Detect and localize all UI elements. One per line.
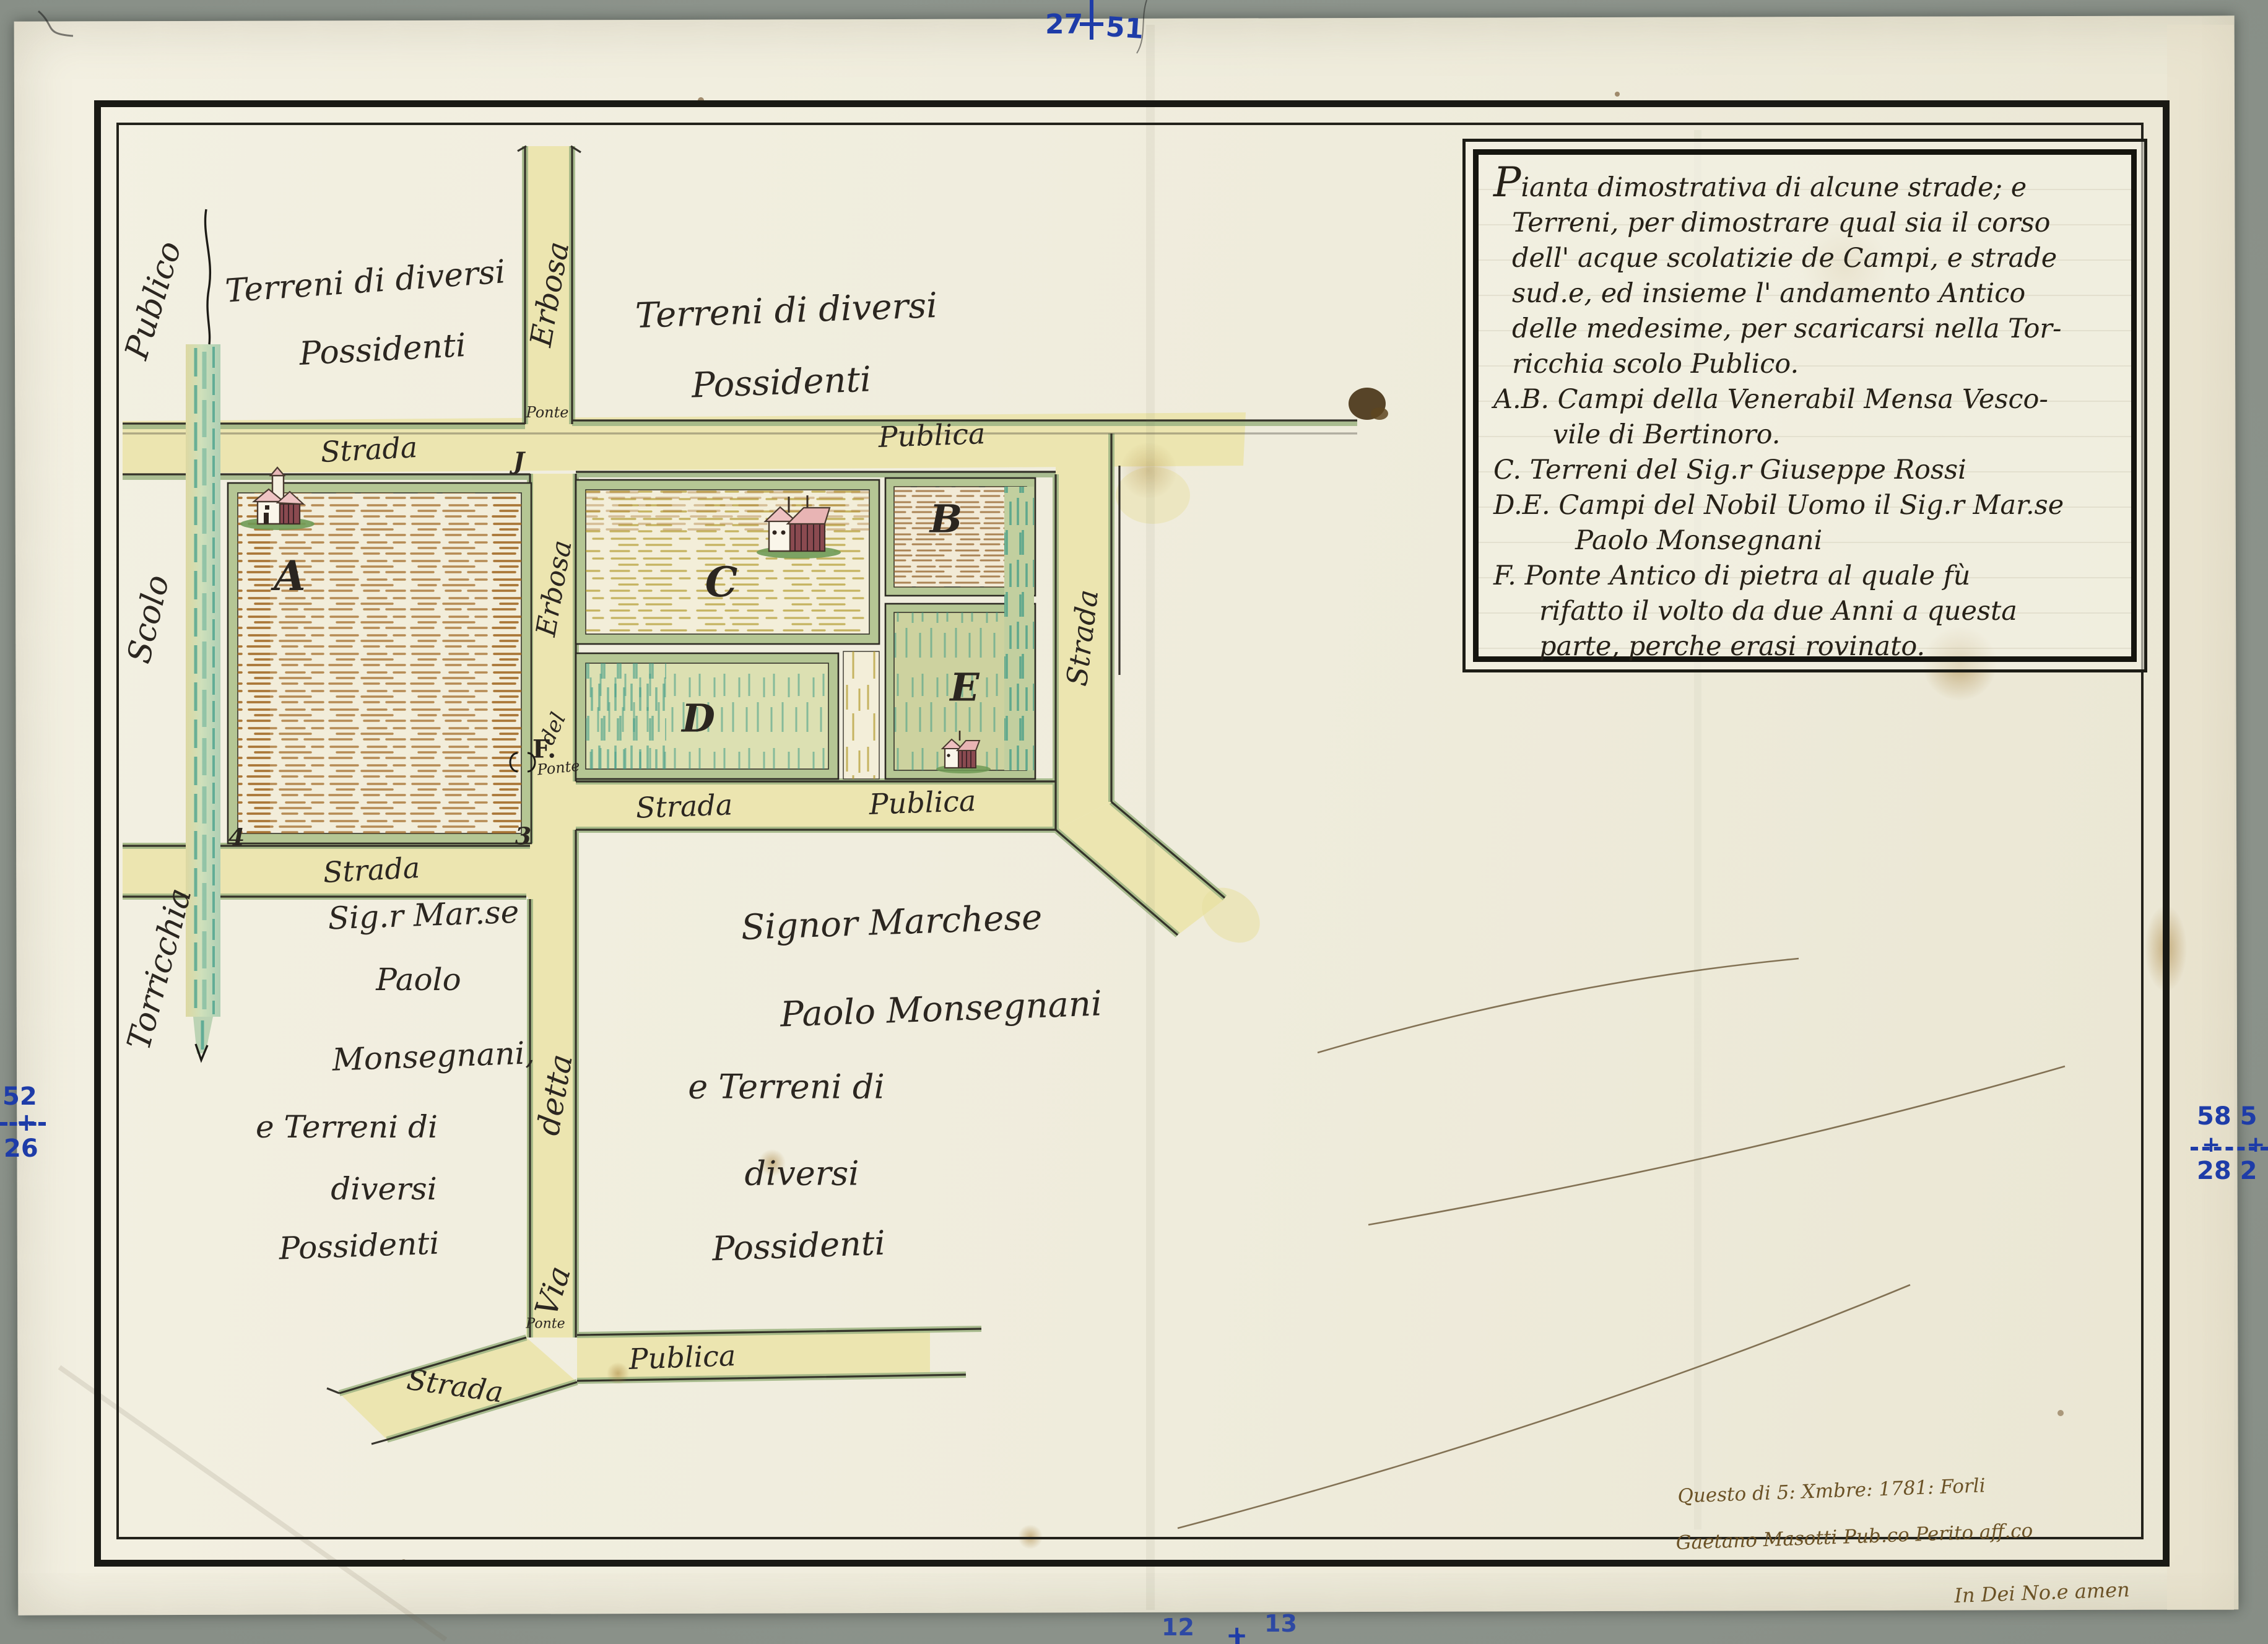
label-publica-top: Publica bbox=[878, 417, 986, 454]
reg-mark-right-crosses: ++ bbox=[2202, 1132, 2268, 1157]
paper-edge-tint bbox=[2167, 25, 2234, 1610]
reg-mark-left-cross: + bbox=[16, 1108, 37, 1137]
legend-item-c: C. Terreni del Sig.r Giuseppe Rossi bbox=[1493, 453, 2122, 488]
label-publica-bottom: Publica bbox=[628, 1339, 736, 1376]
reg-mark-right-top-number: 58 5 bbox=[2197, 1102, 2257, 1131]
reg-mark-top-cross-v bbox=[1090, 0, 1093, 40]
reg-mark-top-left-number: 27 bbox=[1045, 9, 1083, 40]
owner-center-line3: e Terreni di bbox=[688, 1068, 885, 1107]
owner-left-line3: Monsegnani, bbox=[332, 1035, 536, 1077]
parcel-letter-e: E bbox=[950, 665, 979, 710]
corner-marker-1: J bbox=[513, 447, 524, 475]
owner-left-line4: e Terreni di bbox=[256, 1109, 438, 1145]
legend-line: Paolo Monsegnani bbox=[1493, 523, 2122, 559]
legend-item-de: D.E. Campi del Nobil Uomo il Sig.r Mar.s… bbox=[1493, 488, 2122, 523]
legend-cartouche: Pianta dimostrativa di alcune strade; e … bbox=[1462, 139, 2147, 672]
legend-line: parte, perche erasi rovinato. bbox=[1493, 629, 2122, 664]
label-ponte-bottom: Ponte bbox=[526, 1316, 565, 1332]
legend-line: Terreni, per dimostrare qual sia il cors… bbox=[1493, 206, 2122, 241]
legend-line: ricchia scolo Publico. bbox=[1493, 347, 2122, 382]
label-strada-top: Strada bbox=[320, 430, 419, 469]
reg-mark-left-bottom-number: 26 bbox=[4, 1134, 38, 1163]
legend-line: dell' acque scolatizie de Campi, e strad… bbox=[1493, 241, 2122, 276]
owner-center-line4: diversi bbox=[744, 1154, 859, 1193]
label-strada-mid: Strada bbox=[635, 788, 733, 824]
parcel-letter-b: B bbox=[930, 497, 962, 542]
legend-line: Pianta dimostrativa di alcune strade; e bbox=[1493, 165, 2122, 206]
corner-marker-4: 4 bbox=[228, 824, 245, 851]
reg-mark-left-top-number: 52 bbox=[2, 1082, 37, 1111]
reg-mark-bottom-left-number: 12 bbox=[1162, 1614, 1194, 1641]
label-publica-mid: Publica bbox=[869, 784, 976, 821]
legend-item-ab: A.B. Campi della Venerabil Mensa Vesco- bbox=[1493, 382, 2122, 417]
owner-center-line5: Possidenti bbox=[711, 1224, 886, 1269]
owner-left-line2: Paolo bbox=[376, 962, 461, 998]
legend-text: Pianta dimostrativa di alcune strade; e … bbox=[1493, 165, 2122, 664]
legend-inner-frame: Pianta dimostrativa di alcune strade; e … bbox=[1473, 149, 2137, 662]
reg-mark-bottom-tick bbox=[1236, 1633, 1240, 1644]
reg-mark-bottom-right-number: 13 bbox=[1264, 1610, 1297, 1637]
reg-mark-right-bottom-number: 28 2 bbox=[2197, 1157, 2257, 1185]
reg-mark-top-cross-h bbox=[1080, 22, 1103, 26]
legend-line: rifatto il volto da due Anni a questa bbox=[1493, 594, 2122, 629]
corner-marker-3: 3 bbox=[515, 822, 531, 850]
legend-item-f: F. Ponte Antico di pietra al quale fù bbox=[1493, 559, 2122, 594]
scanned-map-page: Pianta dimostrativa di alcune strade; e … bbox=[0, 0, 2268, 1644]
owner-left-line1: Sig.r Mar.se bbox=[328, 894, 519, 937]
label-ponte-top: Ponte bbox=[526, 404, 569, 421]
legend-line: delle medesime, per scaricarsi nella Tor… bbox=[1493, 311, 2122, 347]
label-terreni-top-line2: Possidenti bbox=[691, 359, 872, 406]
legend-line: sud.e, ed insieme l' andamento Antico bbox=[1493, 276, 2122, 311]
parcel-letter-c: C bbox=[705, 558, 738, 606]
reg-mark-top-right-number: 51 bbox=[1105, 11, 1145, 45]
owner-left-line5: diversi bbox=[331, 1171, 437, 1207]
legend-line: vile di Bertinoro. bbox=[1493, 417, 2122, 453]
parcel-letter-d: D bbox=[682, 696, 715, 741]
owner-left-line6: Possidenti bbox=[279, 1225, 440, 1266]
label-strada-below-a: Strada bbox=[323, 851, 421, 889]
parcel-letter-a: A bbox=[274, 552, 305, 600]
